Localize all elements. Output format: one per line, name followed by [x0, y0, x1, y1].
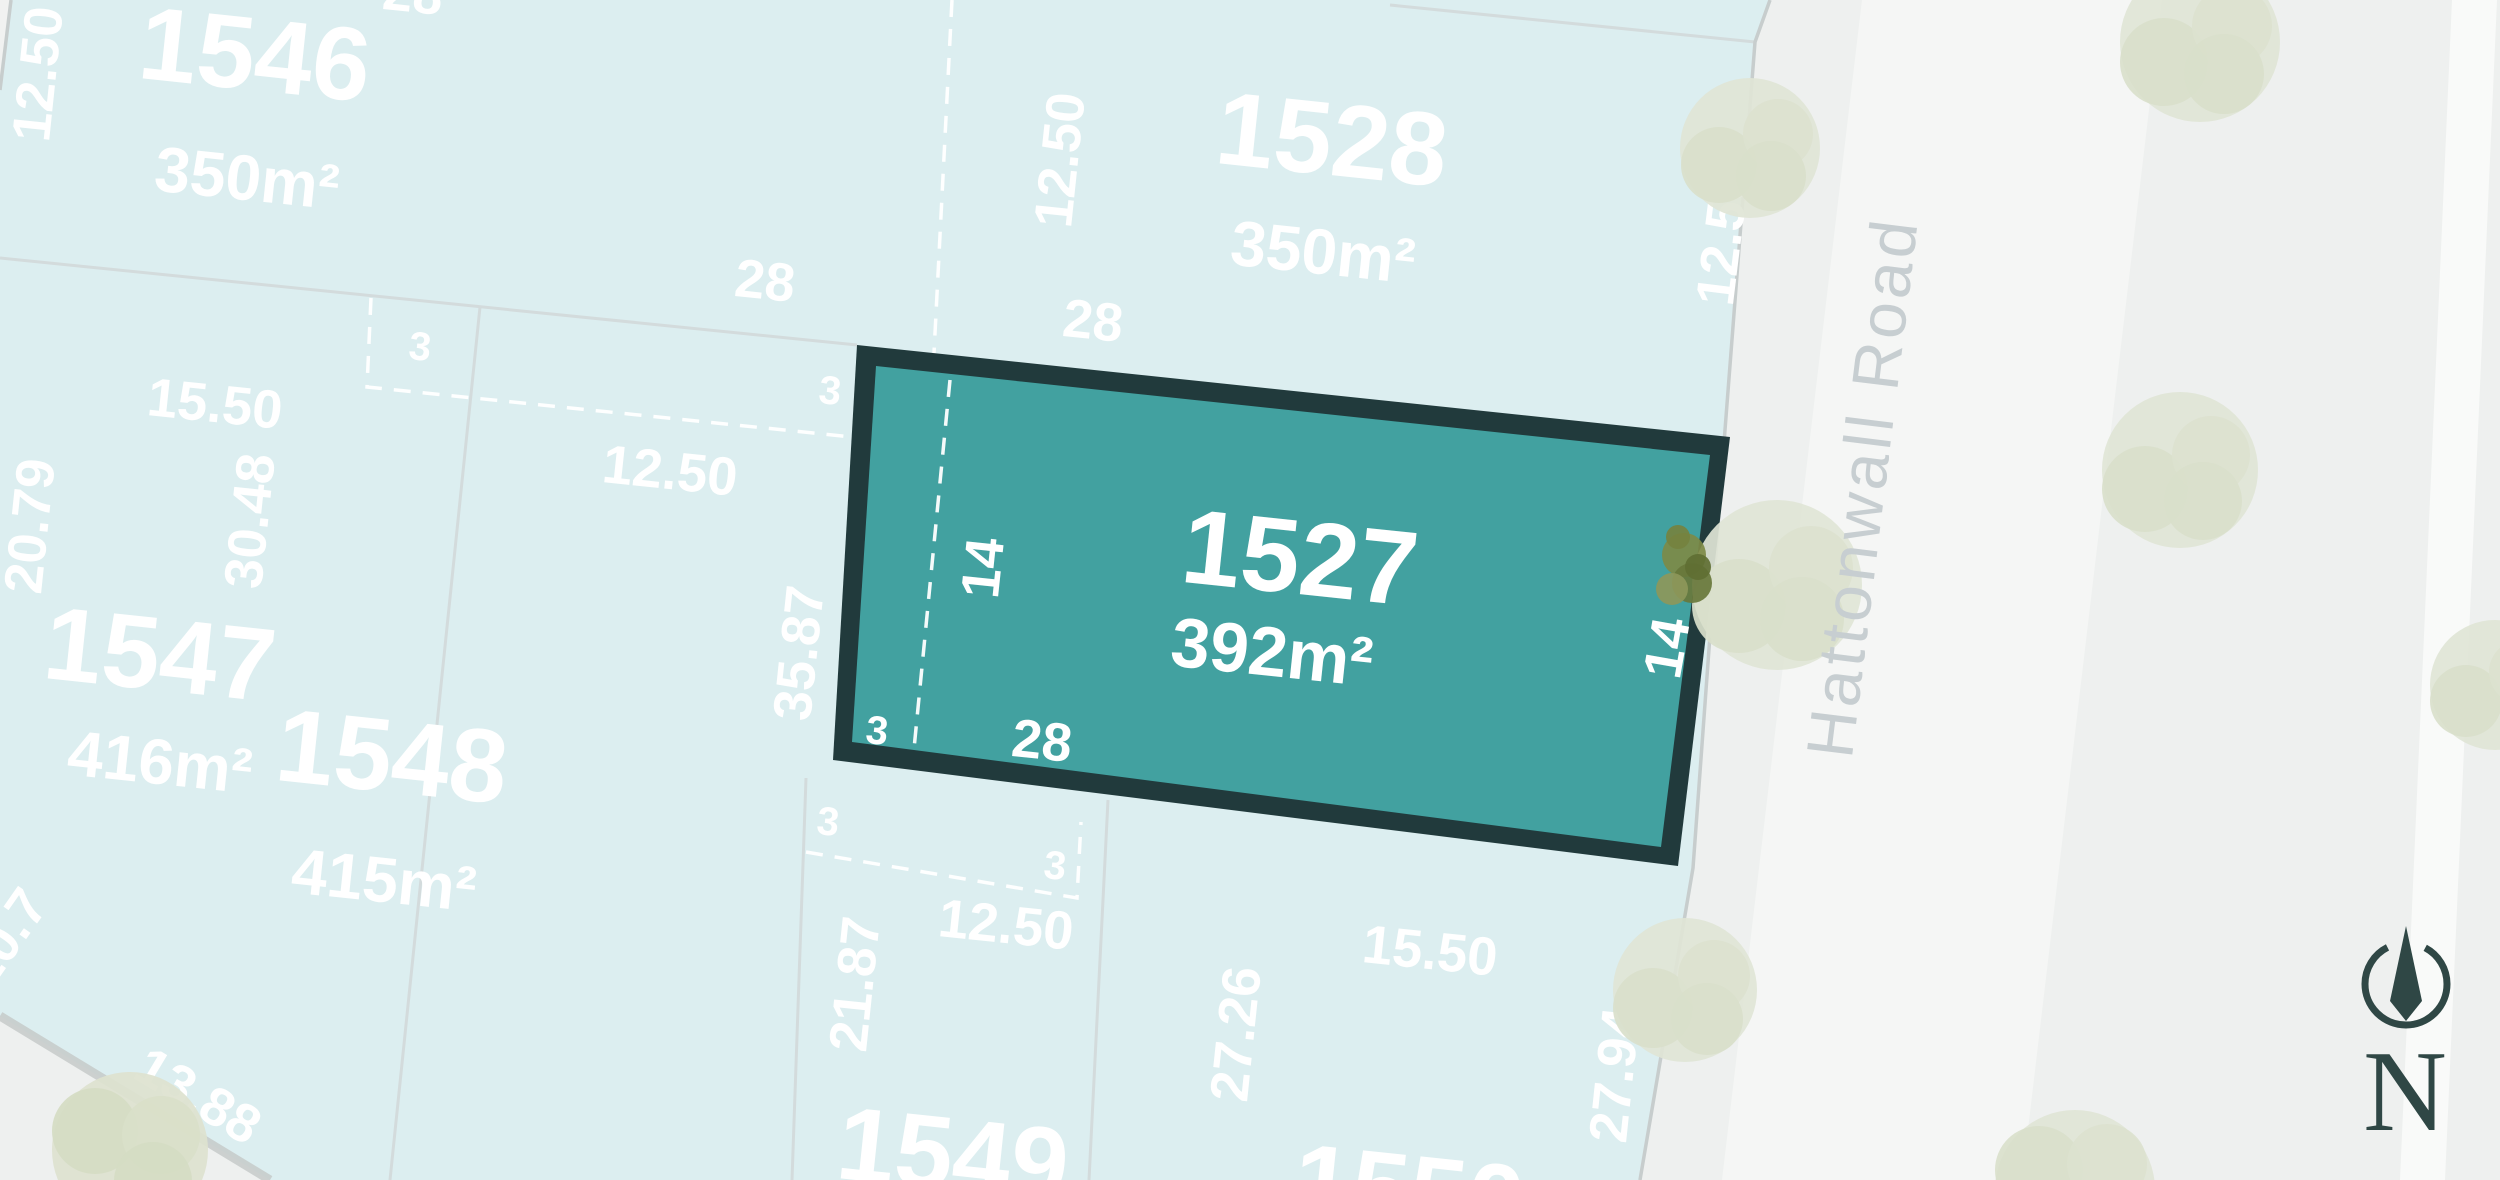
- lot-number: 1548: [271, 687, 513, 827]
- tree-icon: [1680, 78, 1820, 218]
- dim-1527-south: 28: [1009, 708, 1075, 774]
- setback-1527-inner: 3: [864, 708, 891, 754]
- lot-1547: 1547 416m²: [39, 585, 281, 807]
- compass-north-label: N: [2363, 1028, 2447, 1156]
- dim-1528-south: 28: [1060, 288, 1126, 354]
- lot-number: 1547: [39, 585, 281, 725]
- setback-notch: 3: [407, 324, 434, 370]
- dim-1527-frontage: 14: [1632, 613, 1702, 683]
- estate-map-canvas[interactable]: 1546 350m² 1528 350m² 1547 416m² 1548 41…: [0, 0, 2500, 1180]
- lot-number: 1528: [1211, 70, 1453, 210]
- setback-1549: 3: [815, 799, 842, 845]
- tree-icon: [1613, 918, 1757, 1062]
- tree-icon: [2102, 392, 2258, 548]
- dim-1527-inner-width: 14: [950, 535, 1016, 601]
- dim-1546-south: 28: [732, 248, 798, 314]
- setback-1550: 3: [1042, 843, 1069, 889]
- setback-1527-west: 3: [817, 368, 844, 414]
